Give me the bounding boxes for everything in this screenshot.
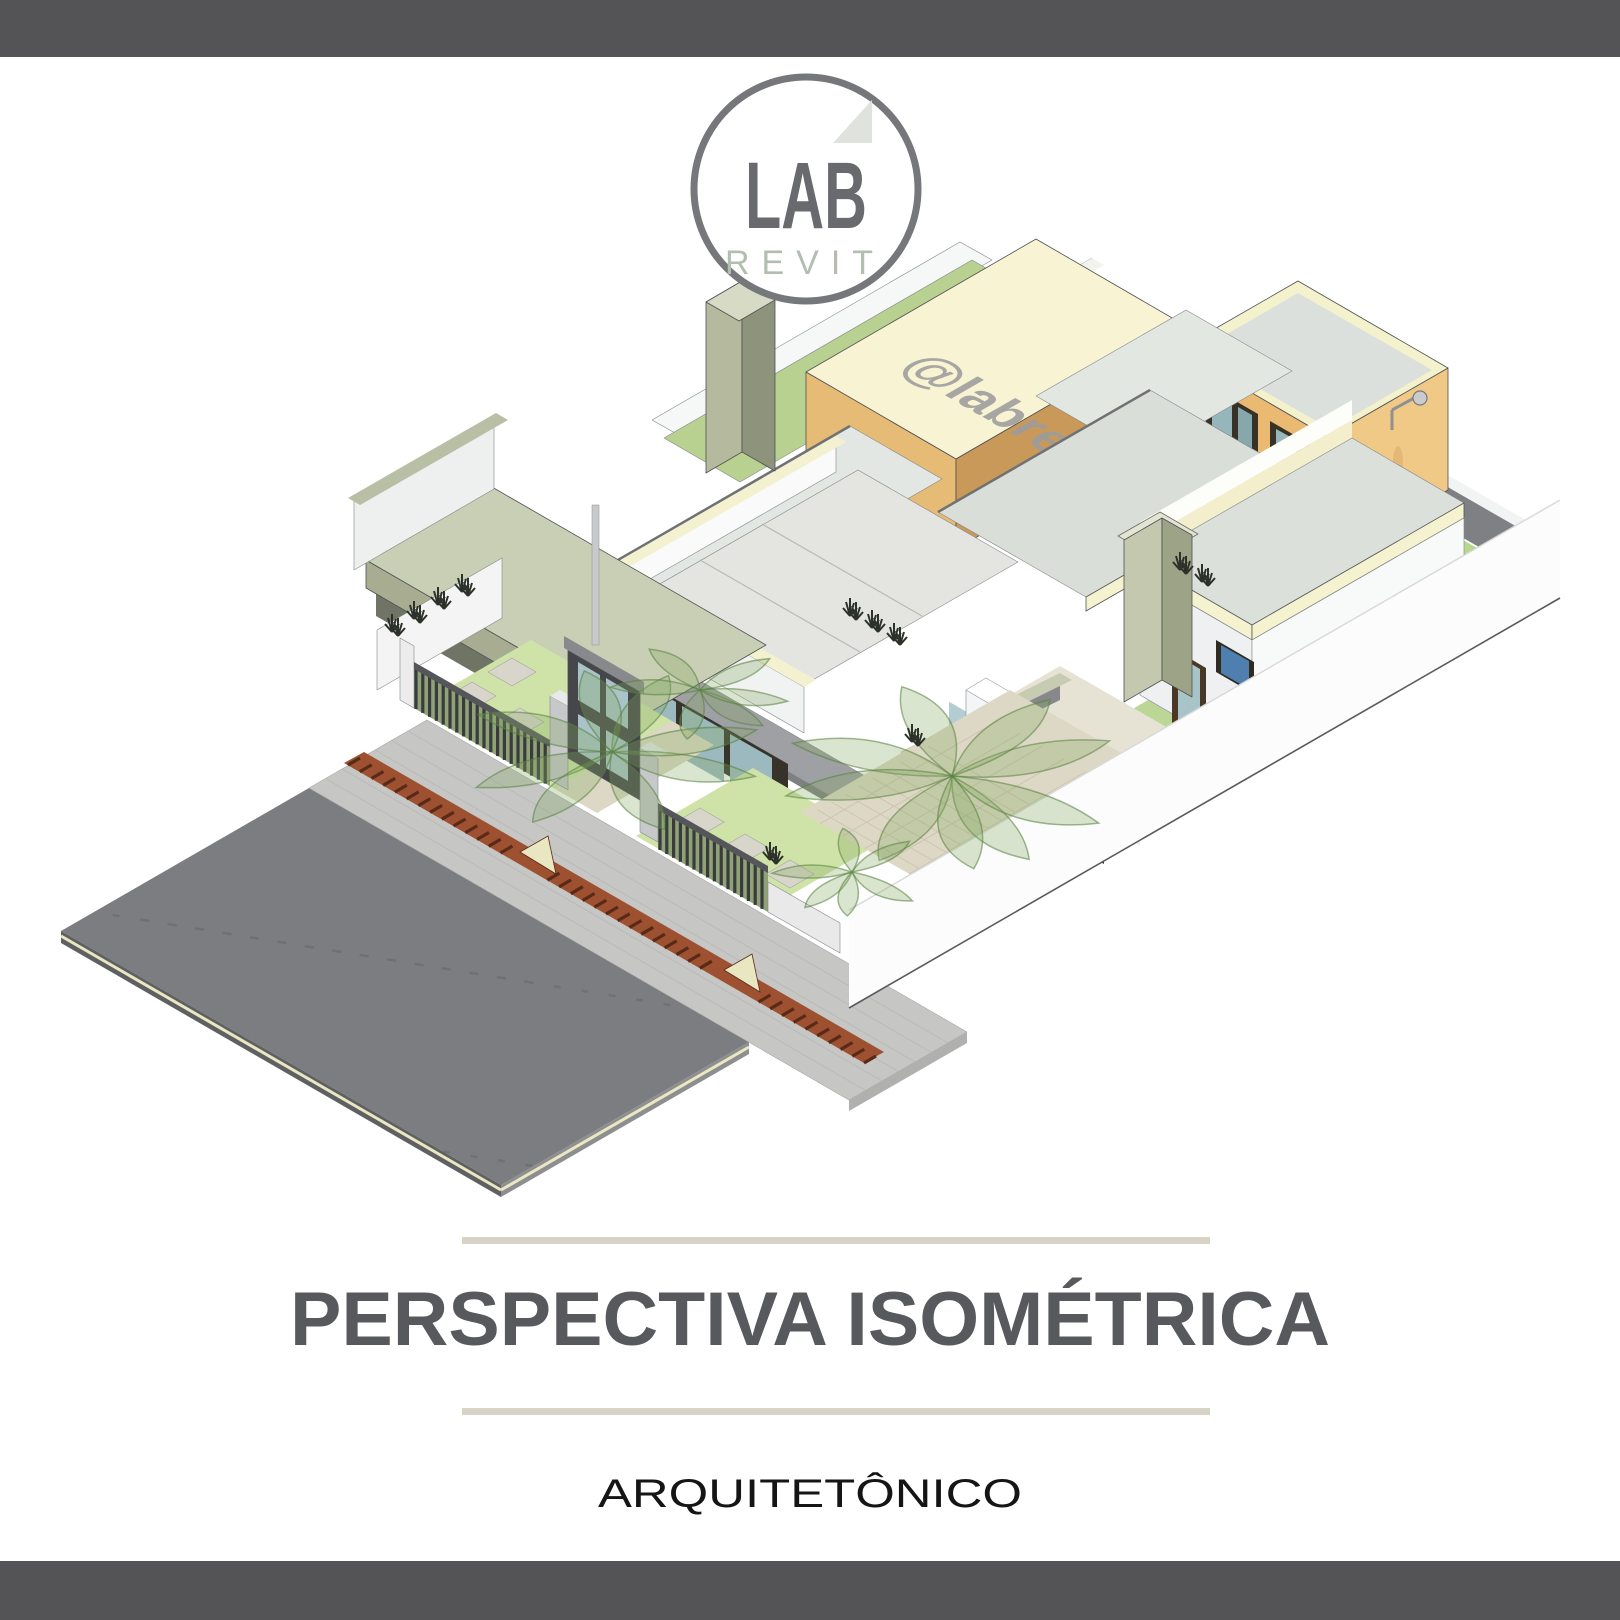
scene-isometric-house: @labrevit [61,239,1560,1197]
title-block: PERSPECTIVA ISOMÉTRICA ARQUITETÔNICO [290,1237,1330,1516]
logo-lab-text: LAB [745,143,867,249]
bottom-bar [0,1561,1620,1620]
poster-canvas: @labrevit [0,0,1620,1620]
shower-head-icon [1413,391,1427,405]
top-bar [0,0,1620,57]
title-rule-bottom [462,1408,1210,1415]
fence-end-pillar [400,638,414,708]
chimney-right-left-face [1124,518,1162,702]
vent-pole [592,505,599,645]
logo-revit-text: REVIT [725,244,885,282]
chimney-right [1118,512,1198,702]
page-title: PERSPECTIVA ISOMÉTRICA [290,1277,1330,1362]
poster-svg: @labrevit [0,0,1620,1620]
logo: LAB REVIT [694,77,918,301]
chimney-left [706,281,775,473]
chimney-right-right-face [1162,518,1192,697]
page-subtitle: ARQUITETÔNICO [598,1471,1022,1516]
title-rule-top [462,1237,1210,1244]
